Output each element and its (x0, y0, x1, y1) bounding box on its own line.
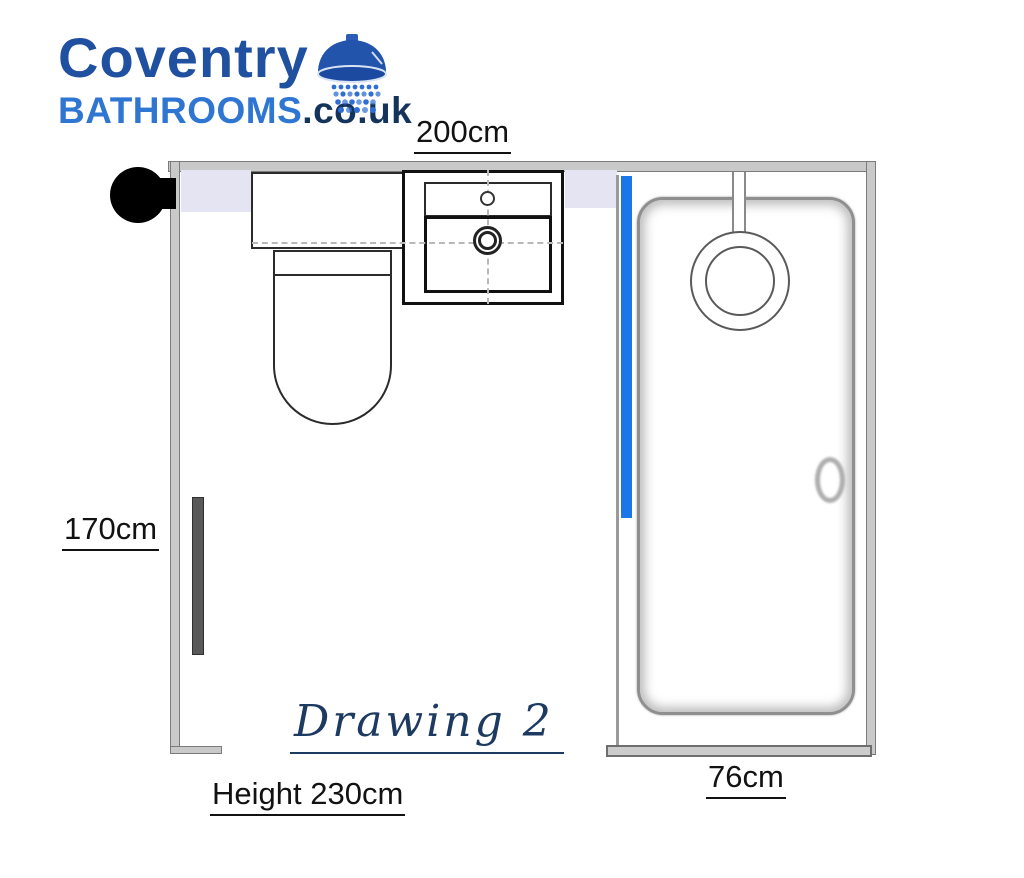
shower-drain-inner (705, 246, 775, 316)
wall-left (170, 161, 180, 754)
drawing-title-text: Drawing 2 (290, 700, 564, 754)
basin-waste-outer (473, 226, 502, 255)
counter-centerline-horizontal (252, 242, 563, 244)
logo-brand: BATHROOMS (58, 90, 302, 131)
shower-threshold (606, 745, 872, 757)
drawing-title: Drawing 2 (290, 700, 564, 754)
towel-radiator (192, 497, 204, 655)
bathroom-plan-page: Coventry BATHROOMS.co.uk (0, 0, 1024, 878)
dimension-left-depth-text: 170cm (62, 512, 159, 551)
tap-hole (480, 191, 495, 206)
dimension-room-height: Height 230cm (210, 777, 405, 816)
shower-drain-outer (690, 231, 790, 331)
shower-door-handle (815, 457, 845, 503)
dimension-top-width: 200cm (414, 115, 511, 154)
wall-band-right (565, 170, 617, 208)
dimension-top-width-text: 200cm (414, 115, 511, 154)
toilet-pan (273, 274, 392, 425)
wall-band-left (181, 170, 251, 212)
logo-text-coventry: Coventry (58, 30, 309, 86)
dimension-left-depth: 170cm (62, 512, 159, 551)
wall-right (866, 161, 876, 755)
shower-screen (621, 176, 632, 518)
dimension-shower-width-text: 76cm (706, 760, 786, 799)
wall-stub-bottom-left (170, 746, 222, 754)
dimension-shower-width: 76cm (706, 760, 786, 799)
basin-waste-inner (478, 231, 497, 250)
door-knob (110, 167, 166, 223)
toilet-cistern (273, 250, 392, 276)
shower-head-icon (312, 34, 392, 118)
shower-glass-panel (616, 175, 619, 747)
shower-riser-pipe (732, 172, 746, 234)
dimension-room-height-text: Height 230cm (210, 777, 405, 816)
